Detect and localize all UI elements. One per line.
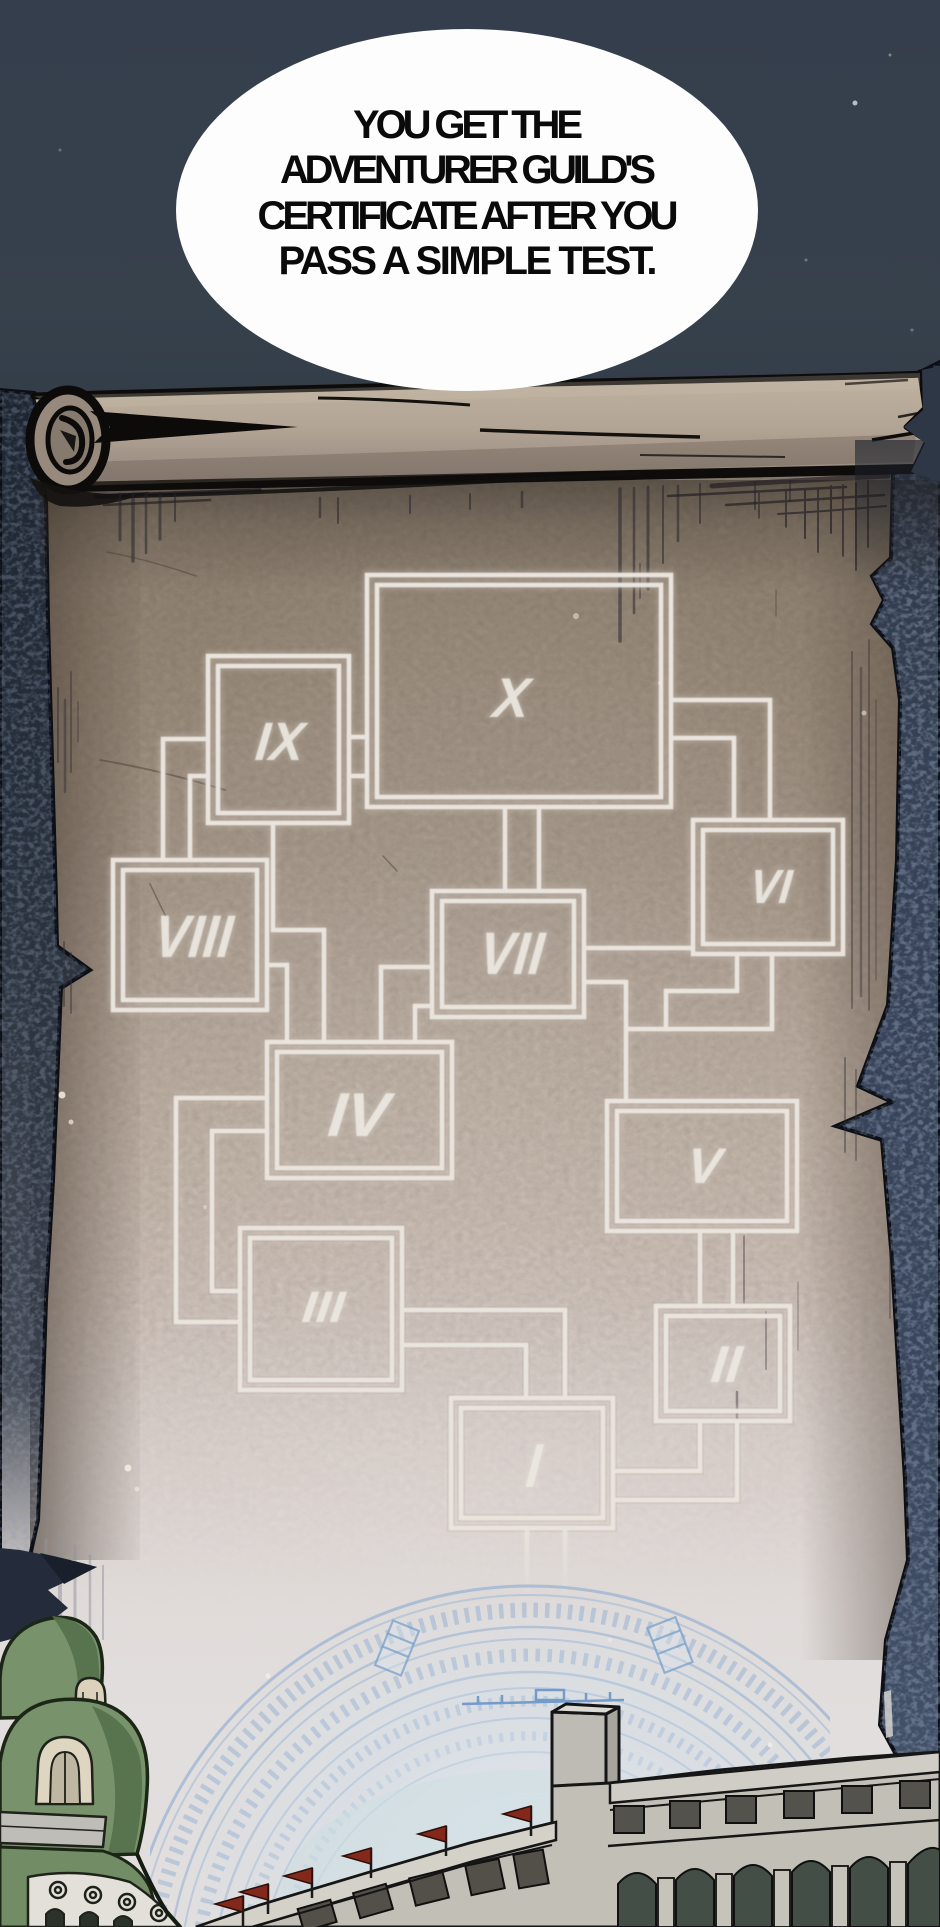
svg-text:ADVENTURER GUILD'S: ADVENTURER GUILD'S [280, 148, 656, 192]
svg-text:CERTIFICATE AFTER YOU: CERTIFICATE AFTER YOU [258, 194, 679, 238]
svg-text:YOU GET THE: YOU GET THE [353, 103, 583, 147]
svg-text:PASS A SIMPLE TEST.: PASS A SIMPLE TEST. [279, 239, 658, 283]
